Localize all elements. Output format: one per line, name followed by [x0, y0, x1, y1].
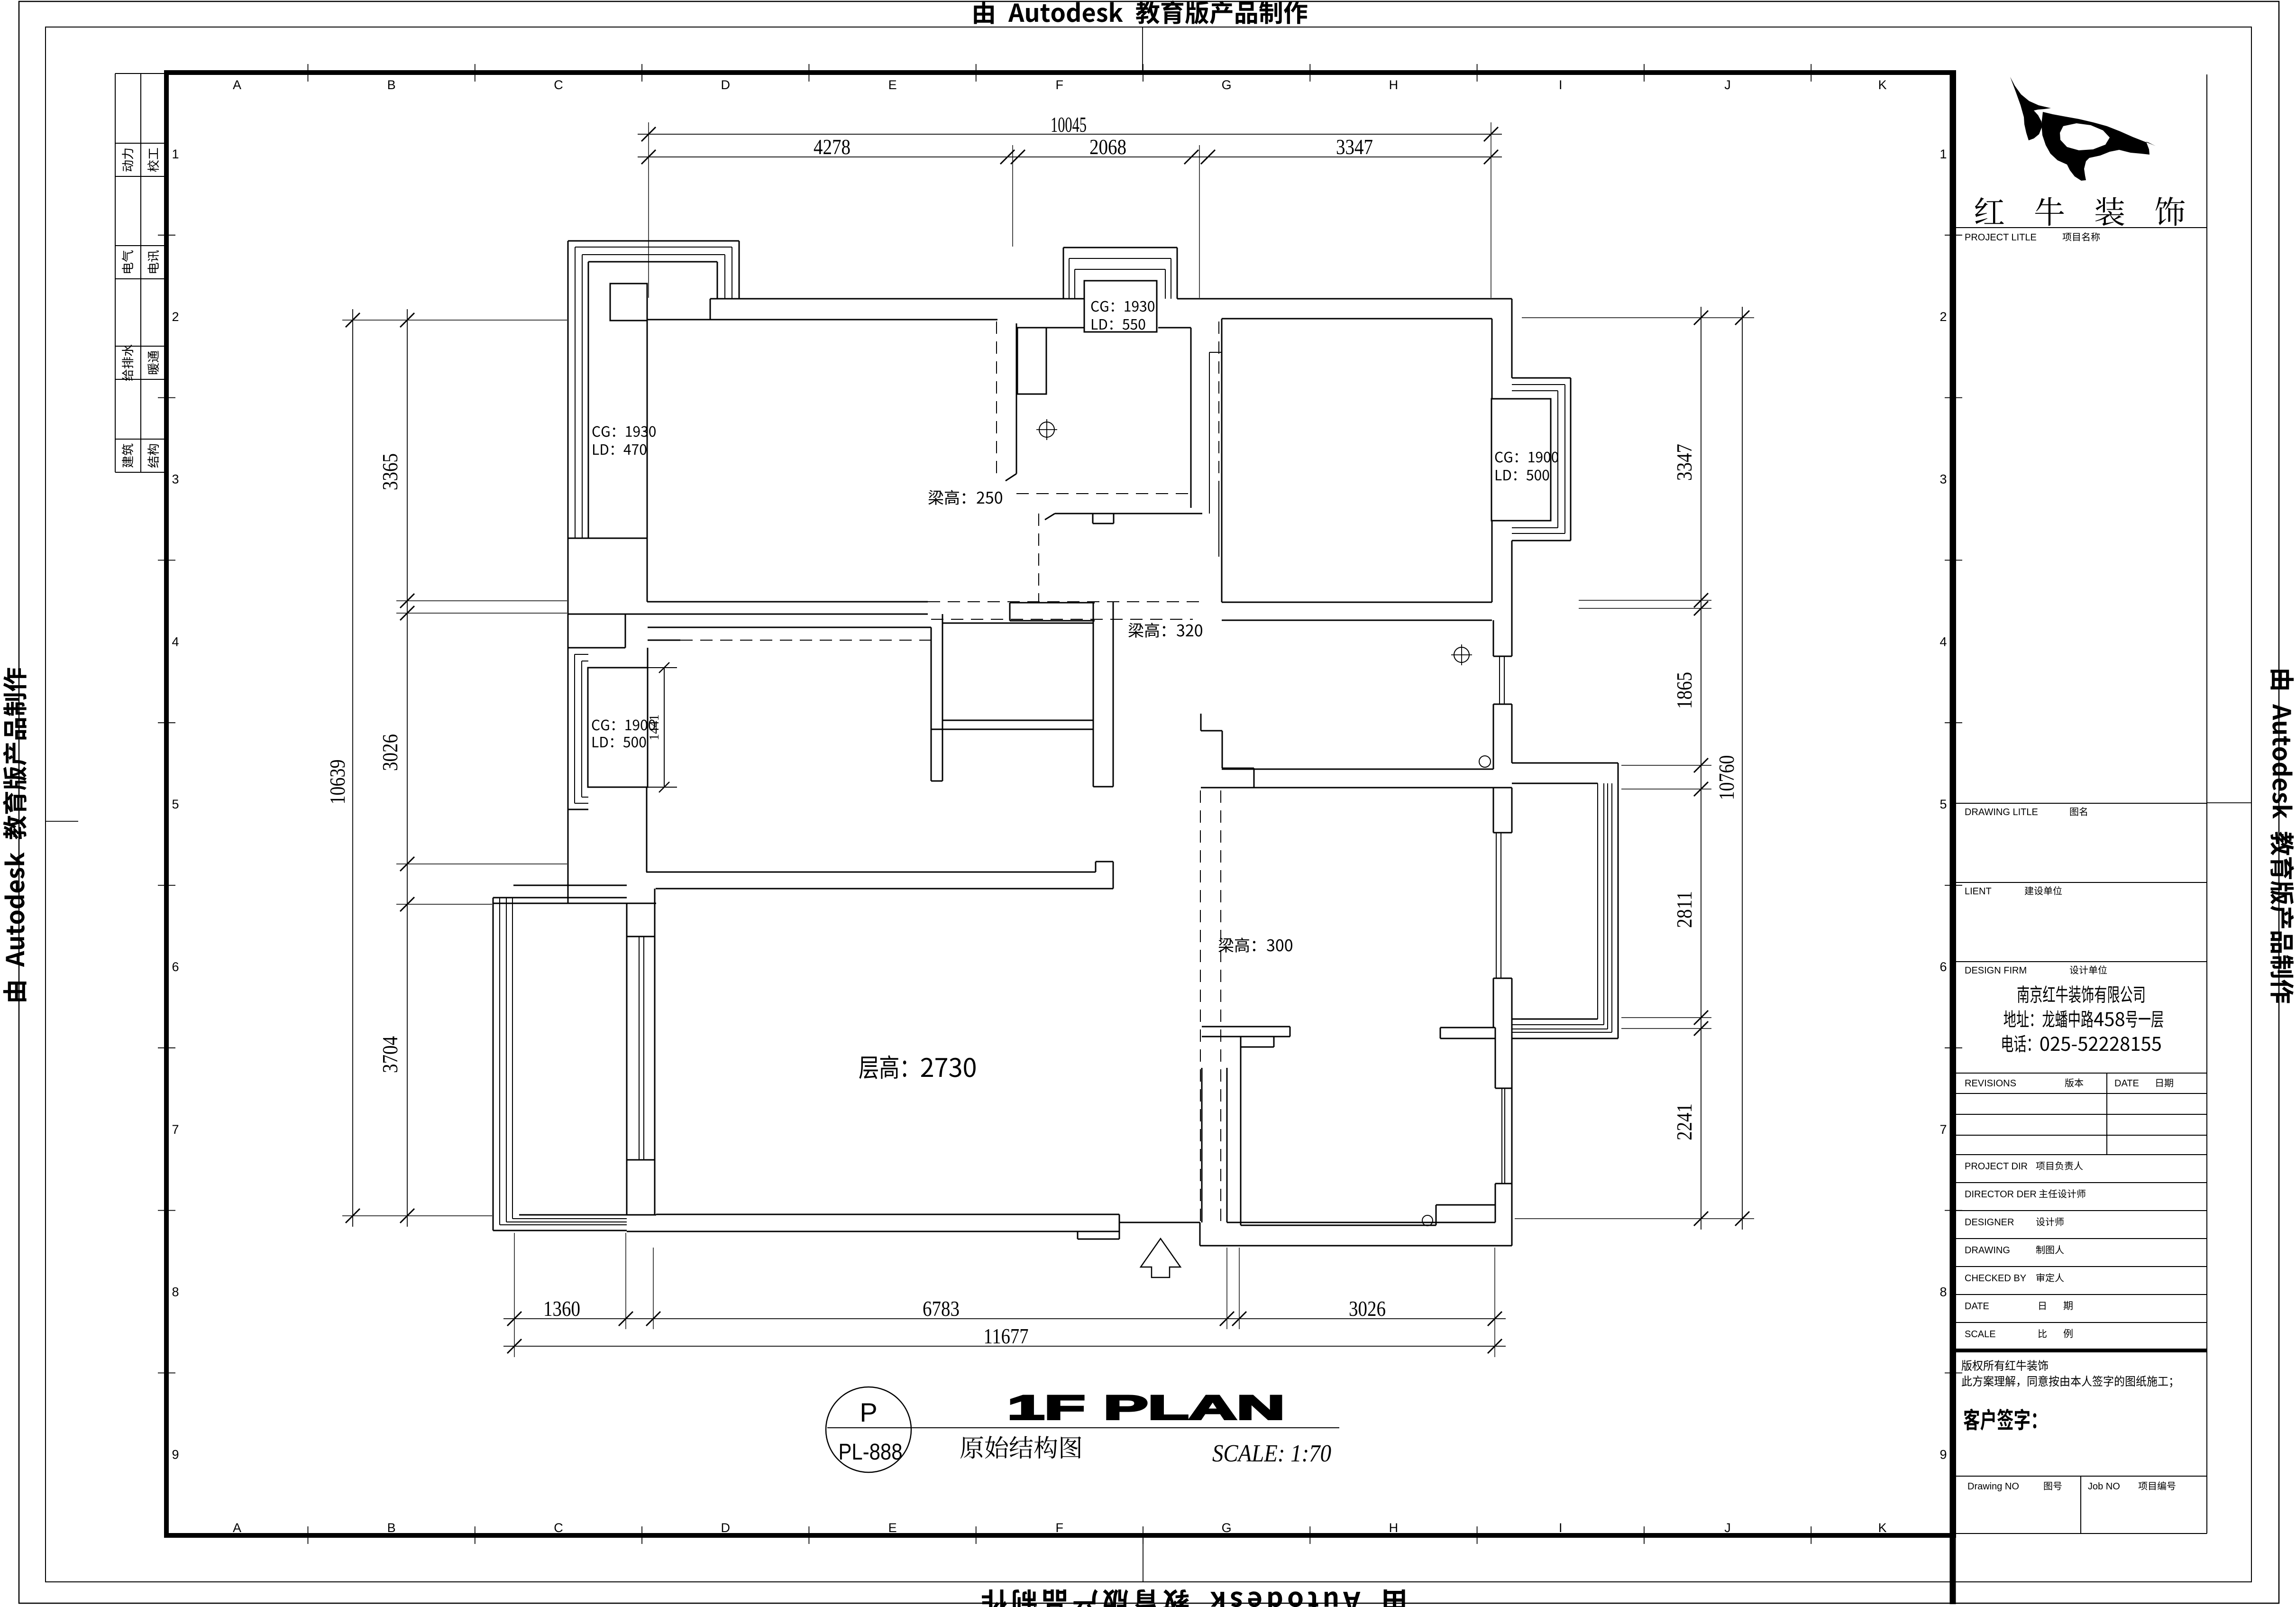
svg-text:DESIGN FIRM: DESIGN FIRM — [1965, 965, 2027, 976]
svg-text:7: 7 — [1939, 1122, 1947, 1137]
svg-text:A: A — [233, 1521, 241, 1535]
svg-text:G: G — [1222, 78, 1232, 92]
svg-text:F: F — [1056, 78, 1064, 92]
svg-text:F: F — [1056, 1521, 1064, 1535]
svg-text:1F PLAN: 1F PLAN — [1007, 1389, 1285, 1427]
svg-text:E: E — [888, 1521, 897, 1535]
svg-text:1865: 1865 — [1672, 672, 1696, 709]
svg-text:9: 9 — [172, 1447, 179, 1461]
svg-text:H: H — [1389, 1521, 1399, 1535]
svg-text:D: D — [721, 78, 731, 92]
svg-text:4278: 4278 — [814, 135, 851, 159]
svg-text:3347: 3347 — [1672, 444, 1696, 481]
svg-text:3365: 3365 — [378, 453, 402, 490]
svg-text:P: P — [860, 1397, 877, 1427]
svg-text:2: 2 — [1939, 310, 1947, 324]
svg-text:Drawing NO: Drawing NO — [1967, 1481, 2019, 1492]
svg-text:J: J — [1724, 1521, 1731, 1535]
svg-text:CHECKED BY: CHECKED BY — [1965, 1273, 2026, 1284]
svg-text:K: K — [1878, 78, 1887, 92]
svg-text:DRAWING LITLE: DRAWING LITLE — [1965, 807, 2038, 817]
svg-text:6783: 6783 — [923, 1296, 960, 1321]
svg-text:DESIGNER: DESIGNER — [1965, 1217, 2014, 1228]
svg-text:PROJECT LITLE: PROJECT LITLE — [1965, 232, 2037, 243]
svg-text:SCALE: 1:70: SCALE: 1:70 — [1212, 1440, 1331, 1467]
svg-text:2241: 2241 — [1672, 1103, 1696, 1140]
svg-text:A: A — [233, 78, 241, 92]
svg-text:3347: 3347 — [1336, 135, 1373, 159]
svg-text:1441: 1441 — [647, 715, 662, 741]
svg-text:E: E — [888, 78, 897, 92]
svg-text:C: C — [554, 78, 563, 92]
svg-text:B: B — [387, 78, 396, 92]
svg-text:PL-888: PL-888 — [839, 1440, 903, 1465]
svg-text:1: 1 — [172, 147, 179, 161]
svg-text:3: 3 — [172, 472, 179, 487]
svg-text:5: 5 — [1939, 797, 1947, 811]
svg-text:PROJECT DIR: PROJECT DIR — [1965, 1161, 2028, 1172]
svg-text:I: I — [1559, 1521, 1563, 1535]
svg-text:Job NO: Job NO — [2088, 1481, 2120, 1492]
svg-text:2: 2 — [172, 310, 179, 324]
svg-text:H: H — [1389, 78, 1399, 92]
svg-text:2811: 2811 — [1672, 891, 1696, 928]
svg-text:5: 5 — [172, 797, 179, 811]
svg-text:10045: 10045 — [1051, 112, 1087, 137]
svg-text:DATE: DATE — [2114, 1078, 2139, 1089]
svg-text:K: K — [1878, 1521, 1887, 1535]
svg-text:7: 7 — [172, 1122, 179, 1137]
svg-text:DRAWING: DRAWING — [1965, 1245, 2010, 1256]
svg-text:3704: 3704 — [378, 1036, 402, 1073]
svg-text:4: 4 — [172, 634, 179, 649]
svg-text:8: 8 — [1939, 1285, 1947, 1299]
svg-text:11677: 11677 — [984, 1324, 1029, 1348]
svg-text:B: B — [387, 1521, 396, 1535]
svg-text:C: C — [554, 1521, 563, 1535]
svg-text:4: 4 — [1939, 634, 1947, 649]
svg-text:1: 1 — [1939, 147, 1947, 161]
svg-text:10760: 10760 — [1714, 755, 1738, 800]
svg-text:DATE: DATE — [1965, 1301, 1989, 1312]
svg-text:G: G — [1222, 1521, 1232, 1535]
svg-text:3: 3 — [1939, 472, 1947, 487]
svg-text:LIENT: LIENT — [1965, 886, 1992, 897]
svg-text:3026: 3026 — [378, 734, 402, 771]
svg-text:3026: 3026 — [1349, 1296, 1386, 1321]
svg-text:10639: 10639 — [325, 760, 349, 805]
svg-text:DIRECTOR DER: DIRECTOR DER — [1965, 1189, 2037, 1200]
svg-text:6: 6 — [172, 960, 179, 974]
svg-text:1360: 1360 — [543, 1296, 580, 1321]
svg-text:8: 8 — [172, 1285, 179, 1299]
svg-text:I: I — [1559, 78, 1563, 92]
svg-text:J: J — [1724, 78, 1731, 92]
svg-text:2068: 2068 — [1089, 135, 1126, 159]
svg-text:9: 9 — [1939, 1447, 1947, 1461]
svg-text:D: D — [721, 1521, 731, 1535]
svg-text:SCALE: SCALE — [1965, 1329, 1996, 1340]
svg-text:REVISIONS: REVISIONS — [1965, 1078, 2016, 1089]
svg-text:6: 6 — [1939, 960, 1947, 974]
